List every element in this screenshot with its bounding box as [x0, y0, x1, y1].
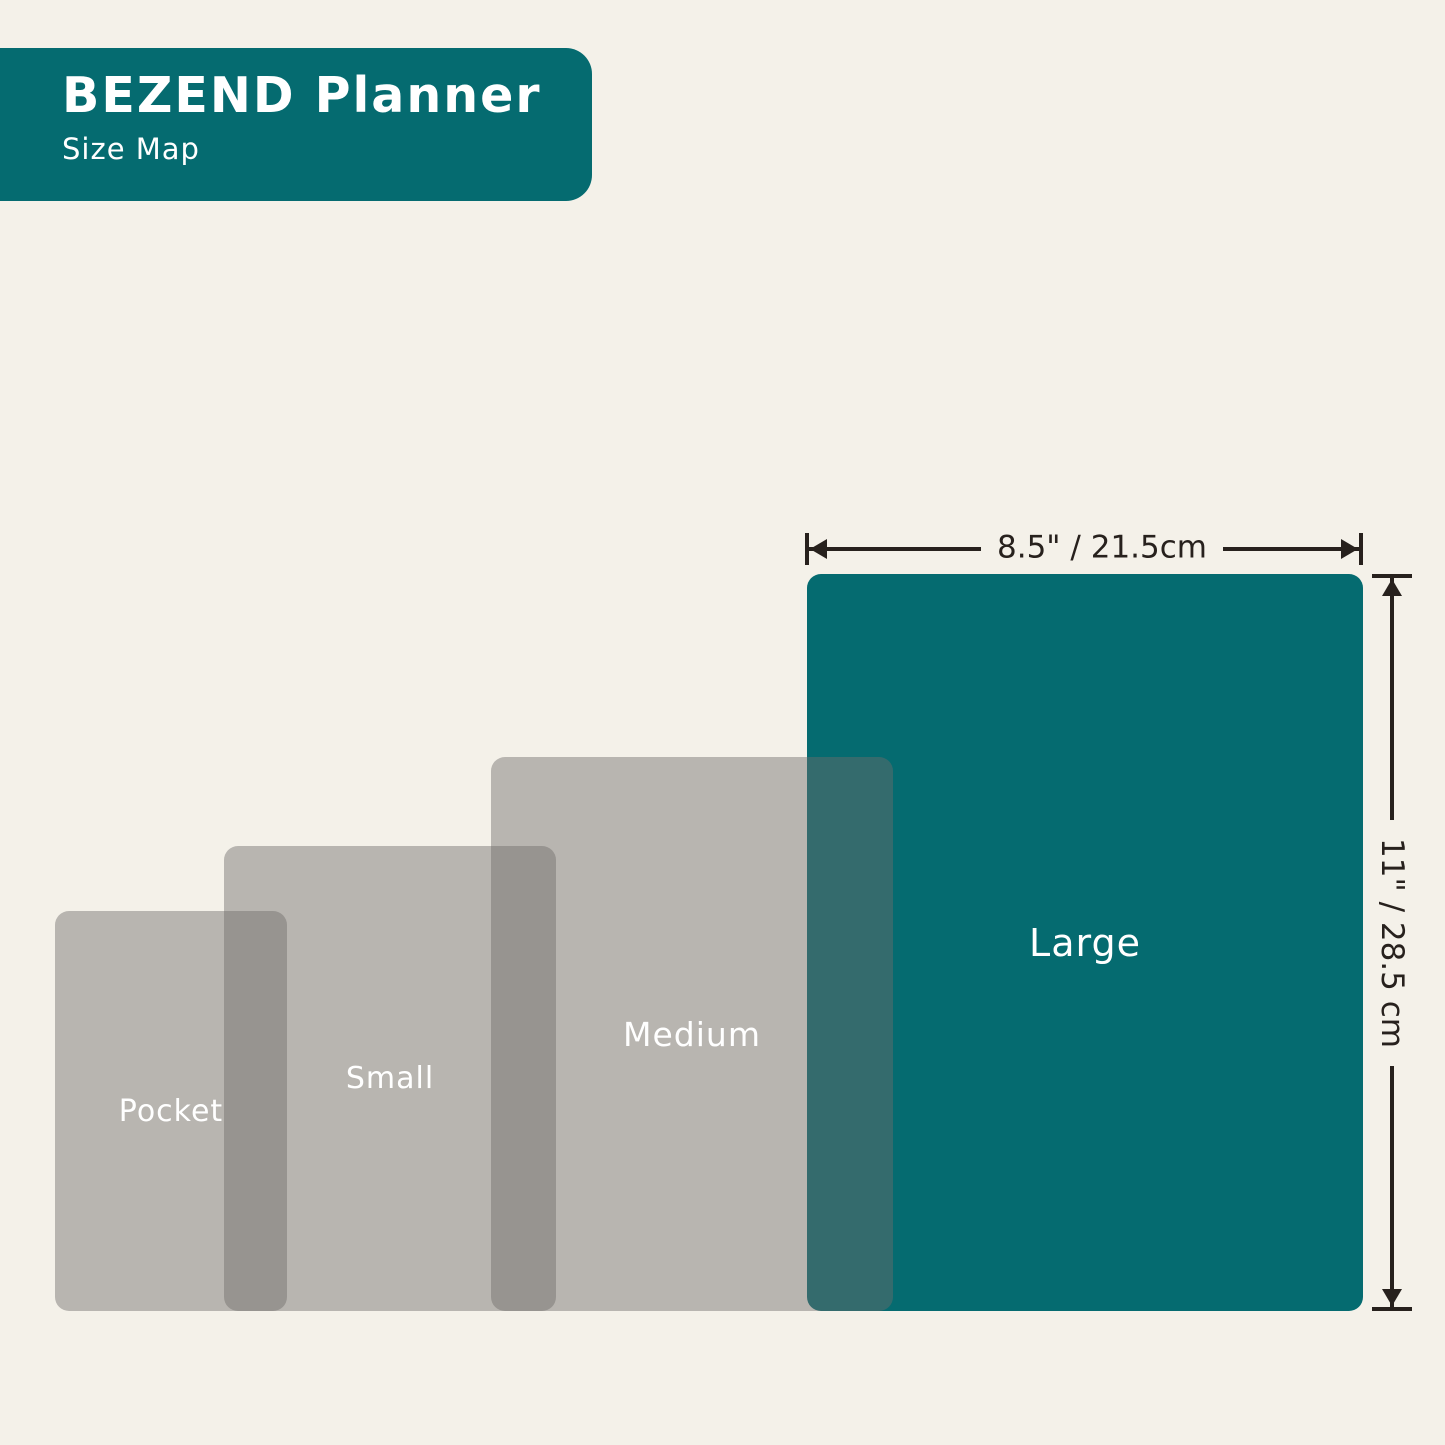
width-dimension-label: 8.5" / 21.5cm [981, 530, 1223, 566]
dimension-end-bar [1359, 533, 1363, 565]
height-dimension-annotation: 11" / 28.5 cm [1372, 574, 1412, 1311]
arrow-right-icon [1341, 539, 1358, 559]
planner-size-pocket: Pocket [55, 911, 287, 1311]
page-subtitle: Size Map [62, 132, 592, 166]
planner-size-label: Small [346, 1061, 434, 1096]
planner-size-label: Medium [623, 1015, 761, 1054]
page-title: BEZEND Planner [62, 68, 592, 124]
header-badge: BEZEND Planner Size Map [0, 48, 592, 201]
arrow-down-icon [1382, 1289, 1402, 1306]
dimension-end-bar [1372, 1307, 1412, 1311]
height-dimension-label: 11" / 28.5 cm [1374, 820, 1410, 1066]
size-map-infographic: BEZEND Planner Size Map Large Medium Sma… [0, 0, 1445, 1445]
planner-size-label: Pocket [119, 1094, 223, 1129]
width-dimension-annotation: 8.5" / 21.5cm [805, 533, 1363, 565]
arrow-left-icon [810, 539, 827, 559]
planner-size-label: Large [1029, 921, 1141, 965]
arrow-up-icon [1382, 579, 1402, 596]
